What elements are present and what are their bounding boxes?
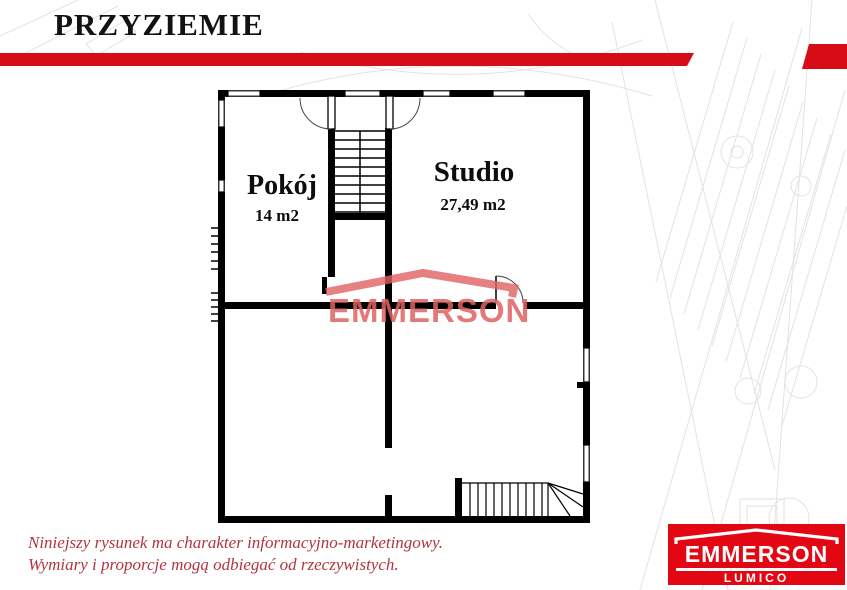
disclaimer-line-2: Wymiary i proporcje mogą odbiegać od rze… [28,554,443,576]
disclaimer: Niniejszy rysunek ma charakter informacy… [28,532,443,576]
accent-corner-shape [802,44,847,69]
brand-name: EMMERSON [668,541,845,568]
watermark-text: EMMERSON [328,292,530,330]
room-label-studio: Studio [434,156,515,189]
brand-subname: LUMICO [668,571,845,585]
exterior-ticks [211,228,218,321]
upper-staircase [335,131,385,213]
room-area-studio: 27,49 m2 [440,195,505,215]
brand-logo: EMMERSON LUMICO [668,524,845,585]
room-area-pokoj: 14 m2 [255,206,299,226]
floor-plan-page: { "header": { "title": "PRZYZIEMIE" }, "… [0,0,847,590]
accent-bar [0,53,694,66]
page-title: PRZYZIEMIE [54,7,264,43]
watermark: EMMERSON [315,266,535,336]
lower-staircase [462,483,583,516]
room-label-pokoj: Pokój [247,170,317,202]
disclaimer-line-1: Niniejszy rysunek ma charakter informacy… [28,532,443,554]
accent-shapes [0,44,847,69]
